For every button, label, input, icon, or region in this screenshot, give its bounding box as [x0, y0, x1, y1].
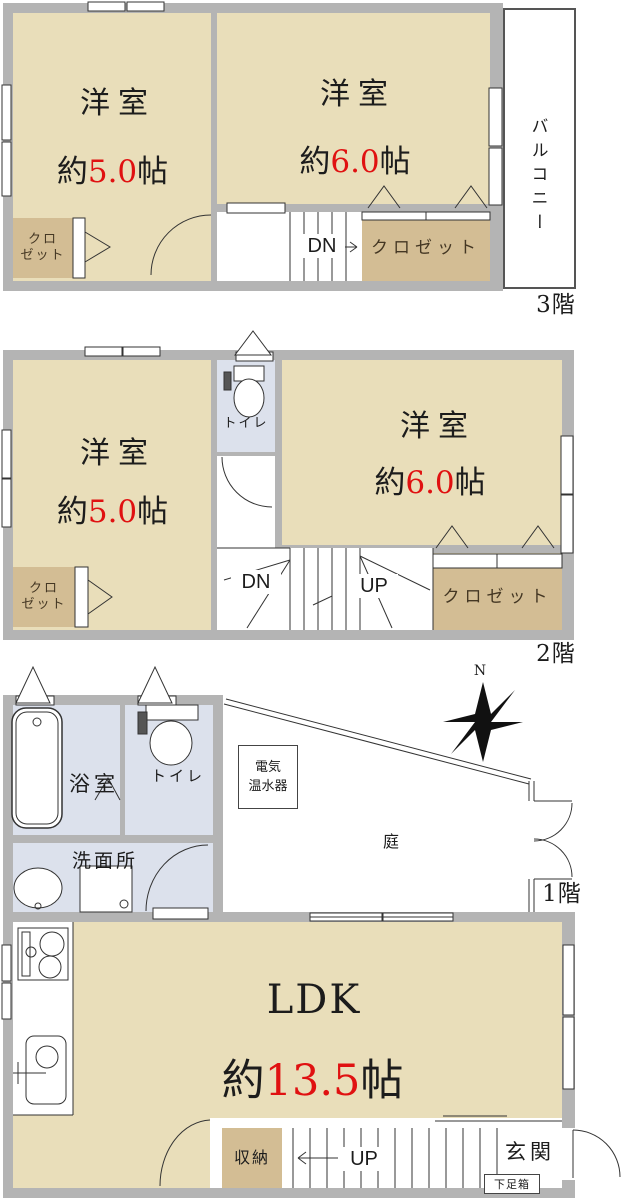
f3-balcony-label: バルコニー: [522, 82, 552, 272]
f3-room-large-size: 約6.0帖: [260, 142, 450, 182]
f1-kitchen-counter: [13, 922, 73, 1115]
f3-closet-left-label: クロゼット: [13, 224, 73, 272]
f1-wall-ldk-left: [3, 912, 13, 1198]
f2-hall: [217, 456, 275, 548]
f1-entrance-label: 玄関: [498, 1138, 562, 1166]
floor-plan: 洋室 約5.0帖 洋室 約6.0帖 DN クロゼット クロゼット バルコニー 3…: [0, 0, 624, 1200]
f3-wall-left: [3, 3, 13, 291]
f1-floor-label: 1階: [530, 880, 594, 908]
f3-wall-top: [3, 3, 503, 13]
f1-washroom-label: 洗面所: [51, 847, 159, 875]
f1-bath-label: 浴室: [61, 770, 127, 798]
f2-stairs-dn-label: DN: [231, 570, 281, 594]
f1-wet-area: [13, 705, 213, 912]
f1-stairs-up-label: UP: [340, 1147, 388, 1171]
f3-wall-bottom: [3, 281, 503, 291]
f1-wall-bath-left: [3, 695, 13, 922]
f2-room-small-size: 約5.0帖: [15, 492, 210, 532]
f3-stairs-dn-label: DN: [299, 234, 345, 258]
f1-water-heater: 電気温水器: [238, 745, 298, 809]
f2-wall-left: [3, 350, 13, 640]
f2-room-large-size: 約6.0帖: [330, 462, 530, 504]
f2-wall-top: [3, 350, 574, 360]
f1-shoe-box-label: 下足箱: [484, 1174, 540, 1194]
f2-room-large-name: 洋室: [342, 408, 526, 446]
f3-wall-room-bottom: [217, 204, 490, 212]
f2-toilet-room: [217, 360, 275, 452]
f3-room-small-name: 洋室: [30, 86, 198, 122]
f1-wall-ldk-top: [3, 912, 575, 922]
f2-room-small-name: 洋室: [30, 436, 198, 472]
f1-ldk-name: LDK: [250, 976, 378, 1024]
f2-wall-toilet-right: [275, 360, 282, 548]
f1-garden-label: 庭: [374, 830, 408, 854]
f2-wall-right: [562, 350, 574, 640]
f2-wall-bottom: [3, 630, 574, 640]
f1-toilet-label: トイレ: [143, 764, 213, 788]
f2-floor-label: 2階: [524, 640, 588, 668]
f3-room-small-size: 約5.0帖: [15, 152, 210, 192]
compass-icon: [443, 682, 523, 762]
f3-room-large-name: 洋室: [270, 76, 438, 114]
f1-compass-n-label: N: [468, 662, 492, 680]
f2-stairs-up-label: UP: [350, 574, 398, 598]
f3-closet-right-label: クロゼット: [362, 234, 490, 262]
f3-floor-label: 3階: [524, 291, 588, 319]
f1-wall-bath-right: [213, 695, 223, 912]
f3-wall-right: [490, 3, 503, 291]
f2-closet-right-label: クロゼット: [433, 582, 562, 612]
f2-toilet-label: トイレ: [219, 414, 273, 432]
f1-wall-bath-top: [3, 695, 223, 705]
f1-ldk-size: 約13.5帖: [170, 1054, 455, 1108]
f1-wall-ldk-right: [562, 912, 575, 1198]
f1-wall-washroom-top: [13, 835, 213, 843]
f1-storage-label: 収納: [222, 1146, 282, 1170]
f2-closet-left-label: クロゼット: [13, 573, 75, 621]
